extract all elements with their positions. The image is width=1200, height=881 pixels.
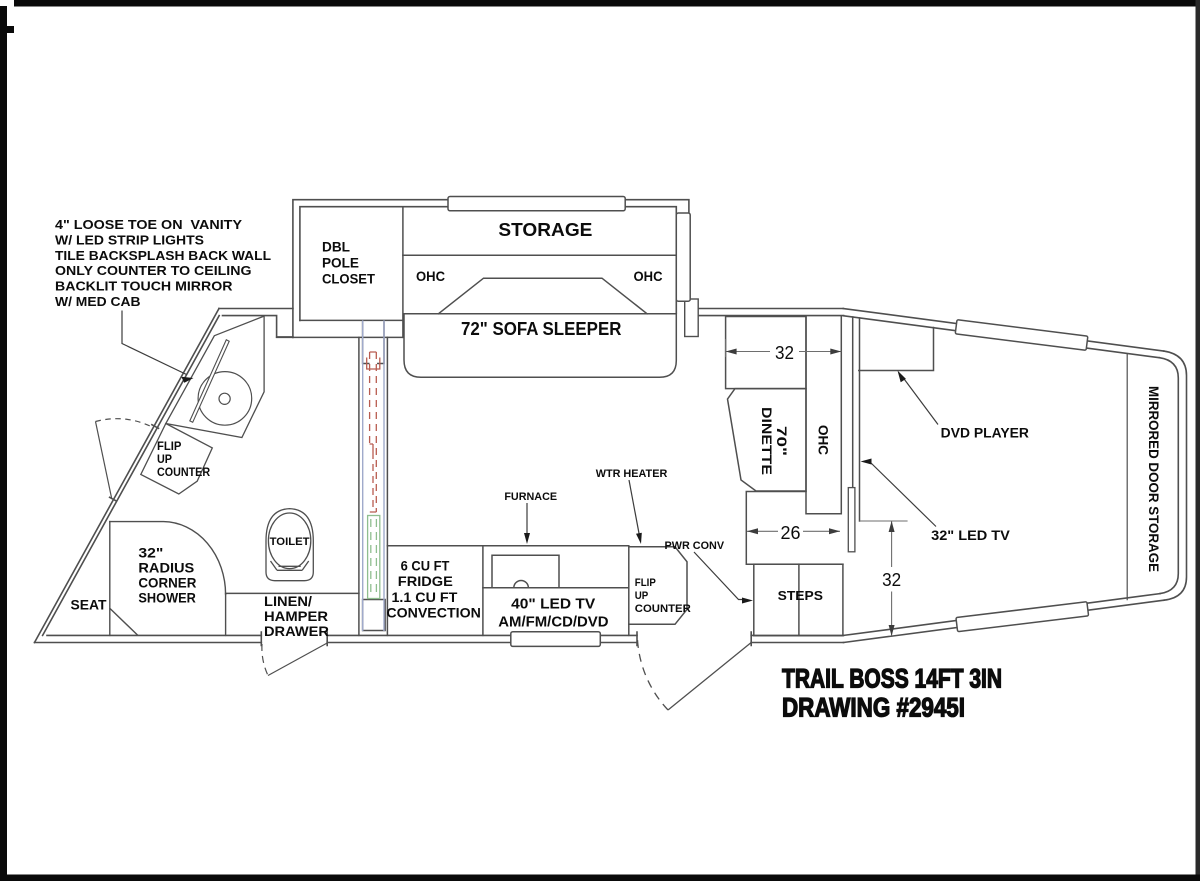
svg-text:6 CU FT: 6 CU FT bbox=[401, 557, 450, 573]
svg-text:WTR HEATER: WTR HEATER bbox=[596, 468, 668, 480]
svg-text:FRIDGE: FRIDGE bbox=[398, 573, 453, 589]
svg-text:CONVECTION: CONVECTION bbox=[386, 605, 481, 621]
svg-text:26: 26 bbox=[781, 523, 801, 543]
svg-text:LINEN/: LINEN/ bbox=[264, 593, 312, 609]
svg-text:STEPS: STEPS bbox=[778, 588, 824, 603]
svg-text:MIRRORED DOOR STORAGE: MIRRORED DOOR STORAGE bbox=[1146, 386, 1161, 572]
svg-text:HAMPER: HAMPER bbox=[264, 608, 328, 624]
svg-text:BACKLIT TOUCH MIRROR: BACKLIT TOUCH MIRROR bbox=[55, 279, 233, 294]
svg-text:ONLY COUNTER TO CEILING: ONLY COUNTER TO CEILING bbox=[55, 263, 252, 278]
svg-text:POLE: POLE bbox=[322, 255, 359, 271]
svg-text:FLIP: FLIP bbox=[157, 441, 182, 453]
svg-text:AM/FM/CD/DVD: AM/FM/CD/DVD bbox=[498, 614, 608, 630]
svg-text:OHC: OHC bbox=[634, 268, 663, 284]
svg-text:CLOSET: CLOSET bbox=[322, 270, 375, 286]
svg-text:DRAWER: DRAWER bbox=[264, 623, 329, 639]
svg-text:TOILET: TOILET bbox=[270, 536, 310, 548]
svg-text:W/ MED CAB: W/ MED CAB bbox=[55, 294, 141, 309]
svg-text:TILE BACKSPLASH BACK WALL: TILE BACKSPLASH BACK WALL bbox=[55, 248, 271, 263]
svg-text:DINETTE: DINETTE bbox=[759, 407, 774, 475]
svg-text:STORAGE: STORAGE bbox=[498, 220, 592, 240]
svg-text:4" LOOSE TOE ON VANITY: 4" LOOSE TOE ON VANITY bbox=[55, 217, 242, 232]
svg-text:32": 32" bbox=[138, 545, 163, 561]
svg-text:70": 70" bbox=[774, 426, 789, 456]
svg-text:72" SOFA SLEEPER: 72" SOFA SLEEPER bbox=[461, 318, 622, 339]
svg-text:32" LED TV: 32" LED TV bbox=[931, 528, 1010, 543]
svg-text:UP: UP bbox=[635, 590, 649, 602]
svg-text:40" LED TV: 40" LED TV bbox=[511, 597, 595, 613]
svg-text:SHOWER: SHOWER bbox=[138, 590, 196, 606]
svg-text:SEAT: SEAT bbox=[71, 597, 107, 613]
svg-text:RADIUS: RADIUS bbox=[138, 560, 194, 576]
svg-text:CORNER: CORNER bbox=[138, 575, 196, 591]
svg-text:DBL: DBL bbox=[322, 239, 350, 255]
svg-text:COUNTER: COUNTER bbox=[157, 467, 211, 479]
svg-text:DRAWING #2945I: DRAWING #2945I bbox=[782, 693, 965, 723]
svg-text:COUNTER: COUNTER bbox=[635, 603, 691, 615]
svg-text:FLIP: FLIP bbox=[635, 577, 656, 589]
svg-text:32: 32 bbox=[882, 570, 901, 590]
svg-text:DVD PLAYER: DVD PLAYER bbox=[941, 425, 1029, 440]
svg-text:1.1 CU FT: 1.1 CU FT bbox=[392, 589, 458, 605]
svg-text:W/ LED STRIP LIGHTS: W/ LED STRIP LIGHTS bbox=[55, 232, 204, 247]
svg-text:PWR CONV: PWR CONV bbox=[665, 540, 725, 552]
svg-text:32: 32 bbox=[775, 343, 794, 363]
svg-text:FURNACE: FURNACE bbox=[504, 491, 557, 503]
svg-text:OHC: OHC bbox=[816, 425, 831, 455]
svg-text:UP: UP bbox=[157, 454, 172, 466]
svg-text:TRAIL BOSS 14FT 3IN: TRAIL BOSS 14FT 3IN bbox=[782, 664, 1002, 694]
svg-text:OHC: OHC bbox=[416, 268, 445, 284]
